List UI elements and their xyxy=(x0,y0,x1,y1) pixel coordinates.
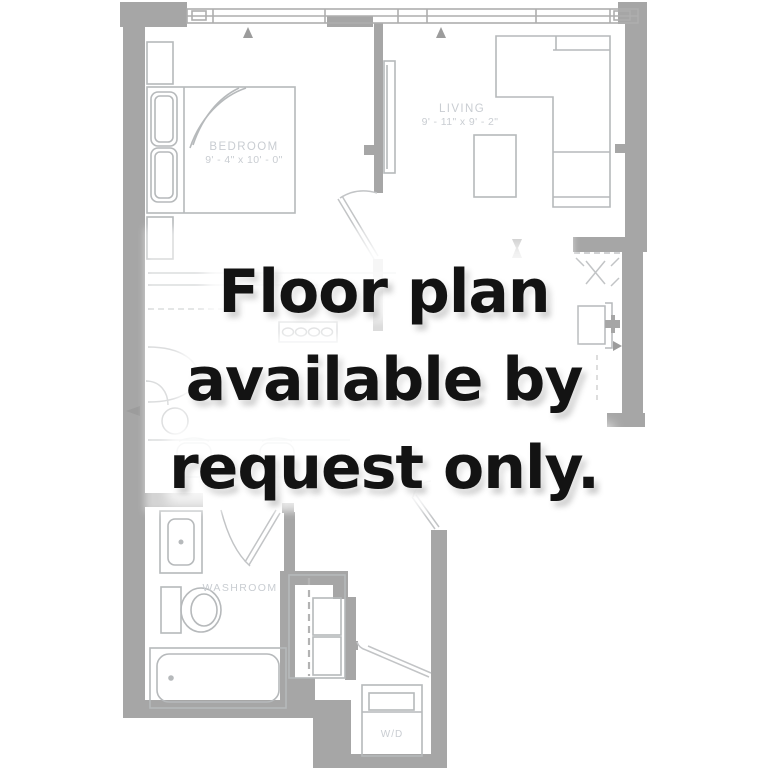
bedroom-dimensions: 9' - 4" x 10' - 0" xyxy=(205,154,283,166)
vanity-sink xyxy=(160,511,202,573)
washroom-fixtures xyxy=(150,511,286,708)
overlay-message: Floor plan available by request only. xyxy=(0,248,768,512)
living-label: LIVING xyxy=(439,103,485,115)
coffee-table xyxy=(474,135,516,197)
bathtub xyxy=(150,648,286,708)
washroom-label: WASHROOM xyxy=(203,582,278,594)
sectional-sofa xyxy=(496,36,610,207)
floor-plan-image: BEDROOM 9' - 4" x 10' - 0" LIVING 9' - 1… xyxy=(0,0,768,768)
ceiling-markers xyxy=(243,27,446,38)
washroom-door xyxy=(221,510,280,566)
bedroom-label: BEDROOM xyxy=(209,141,278,153)
nightstand xyxy=(147,42,173,84)
laundry-door xyxy=(357,642,431,677)
living-dimensions: 9' - 11" x 9' - 2" xyxy=(422,116,499,128)
washer-dryer xyxy=(362,685,422,756)
overlay-message-line-1: Floor plan xyxy=(0,248,768,336)
overlay-message-line-3: request only. xyxy=(0,424,768,512)
overlay-message-line-2: available by xyxy=(0,336,768,424)
wall-tv xyxy=(384,61,395,173)
laundry-label: W/D xyxy=(381,729,403,740)
window-band xyxy=(187,9,638,23)
